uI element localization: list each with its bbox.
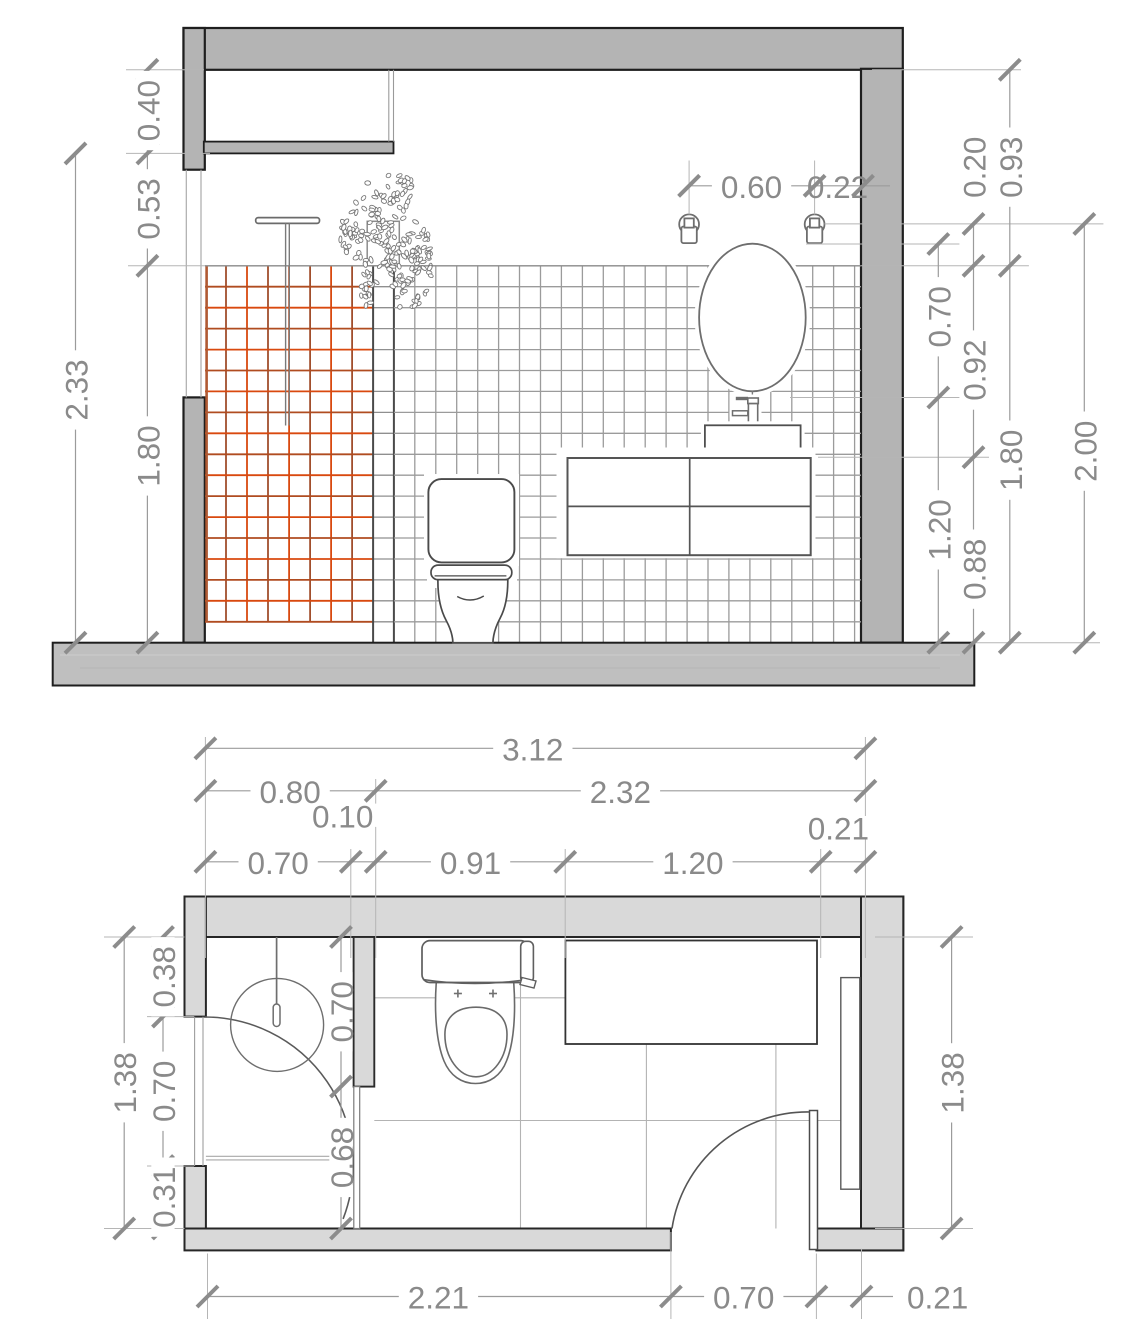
svg-text:0.21: 0.21 bbox=[907, 1280, 968, 1316]
svg-text:0.68: 0.68 bbox=[324, 1127, 360, 1188]
svg-text:0.70: 0.70 bbox=[247, 845, 308, 881]
svg-text:0.91: 0.91 bbox=[440, 845, 501, 881]
svg-text:0.70: 0.70 bbox=[146, 1061, 182, 1122]
svg-text:1.20: 1.20 bbox=[921, 499, 957, 560]
svg-text:0.70: 0.70 bbox=[921, 286, 957, 347]
svg-text:1.80: 1.80 bbox=[993, 430, 1029, 491]
svg-text:1.38: 1.38 bbox=[107, 1052, 143, 1113]
svg-text:0.21: 0.21 bbox=[808, 811, 869, 847]
svg-text:0.60: 0.60 bbox=[721, 169, 782, 205]
svg-text:0.70: 0.70 bbox=[324, 981, 360, 1042]
svg-text:0.93: 0.93 bbox=[993, 137, 1029, 198]
svg-text:0.31: 0.31 bbox=[146, 1167, 182, 1228]
svg-text:2.32: 2.32 bbox=[590, 774, 651, 810]
svg-text:1.38: 1.38 bbox=[935, 1052, 971, 1113]
svg-text:0.40: 0.40 bbox=[130, 80, 166, 141]
svg-text:0.70: 0.70 bbox=[713, 1280, 774, 1316]
svg-text:2.33: 2.33 bbox=[59, 359, 95, 420]
svg-text:1.80: 1.80 bbox=[130, 425, 166, 486]
svg-text:3.12: 3.12 bbox=[502, 731, 563, 767]
svg-text:0.53: 0.53 bbox=[130, 178, 166, 239]
svg-text:1.20: 1.20 bbox=[662, 845, 723, 881]
svg-text:2.00: 2.00 bbox=[1067, 421, 1103, 482]
svg-text:2.21: 2.21 bbox=[408, 1280, 469, 1316]
svg-text:0.38: 0.38 bbox=[146, 946, 182, 1007]
svg-text:0.88: 0.88 bbox=[957, 539, 993, 600]
svg-text:0.20: 0.20 bbox=[957, 137, 993, 198]
svg-text:0.92: 0.92 bbox=[957, 339, 993, 400]
svg-text:0.10: 0.10 bbox=[312, 798, 373, 834]
